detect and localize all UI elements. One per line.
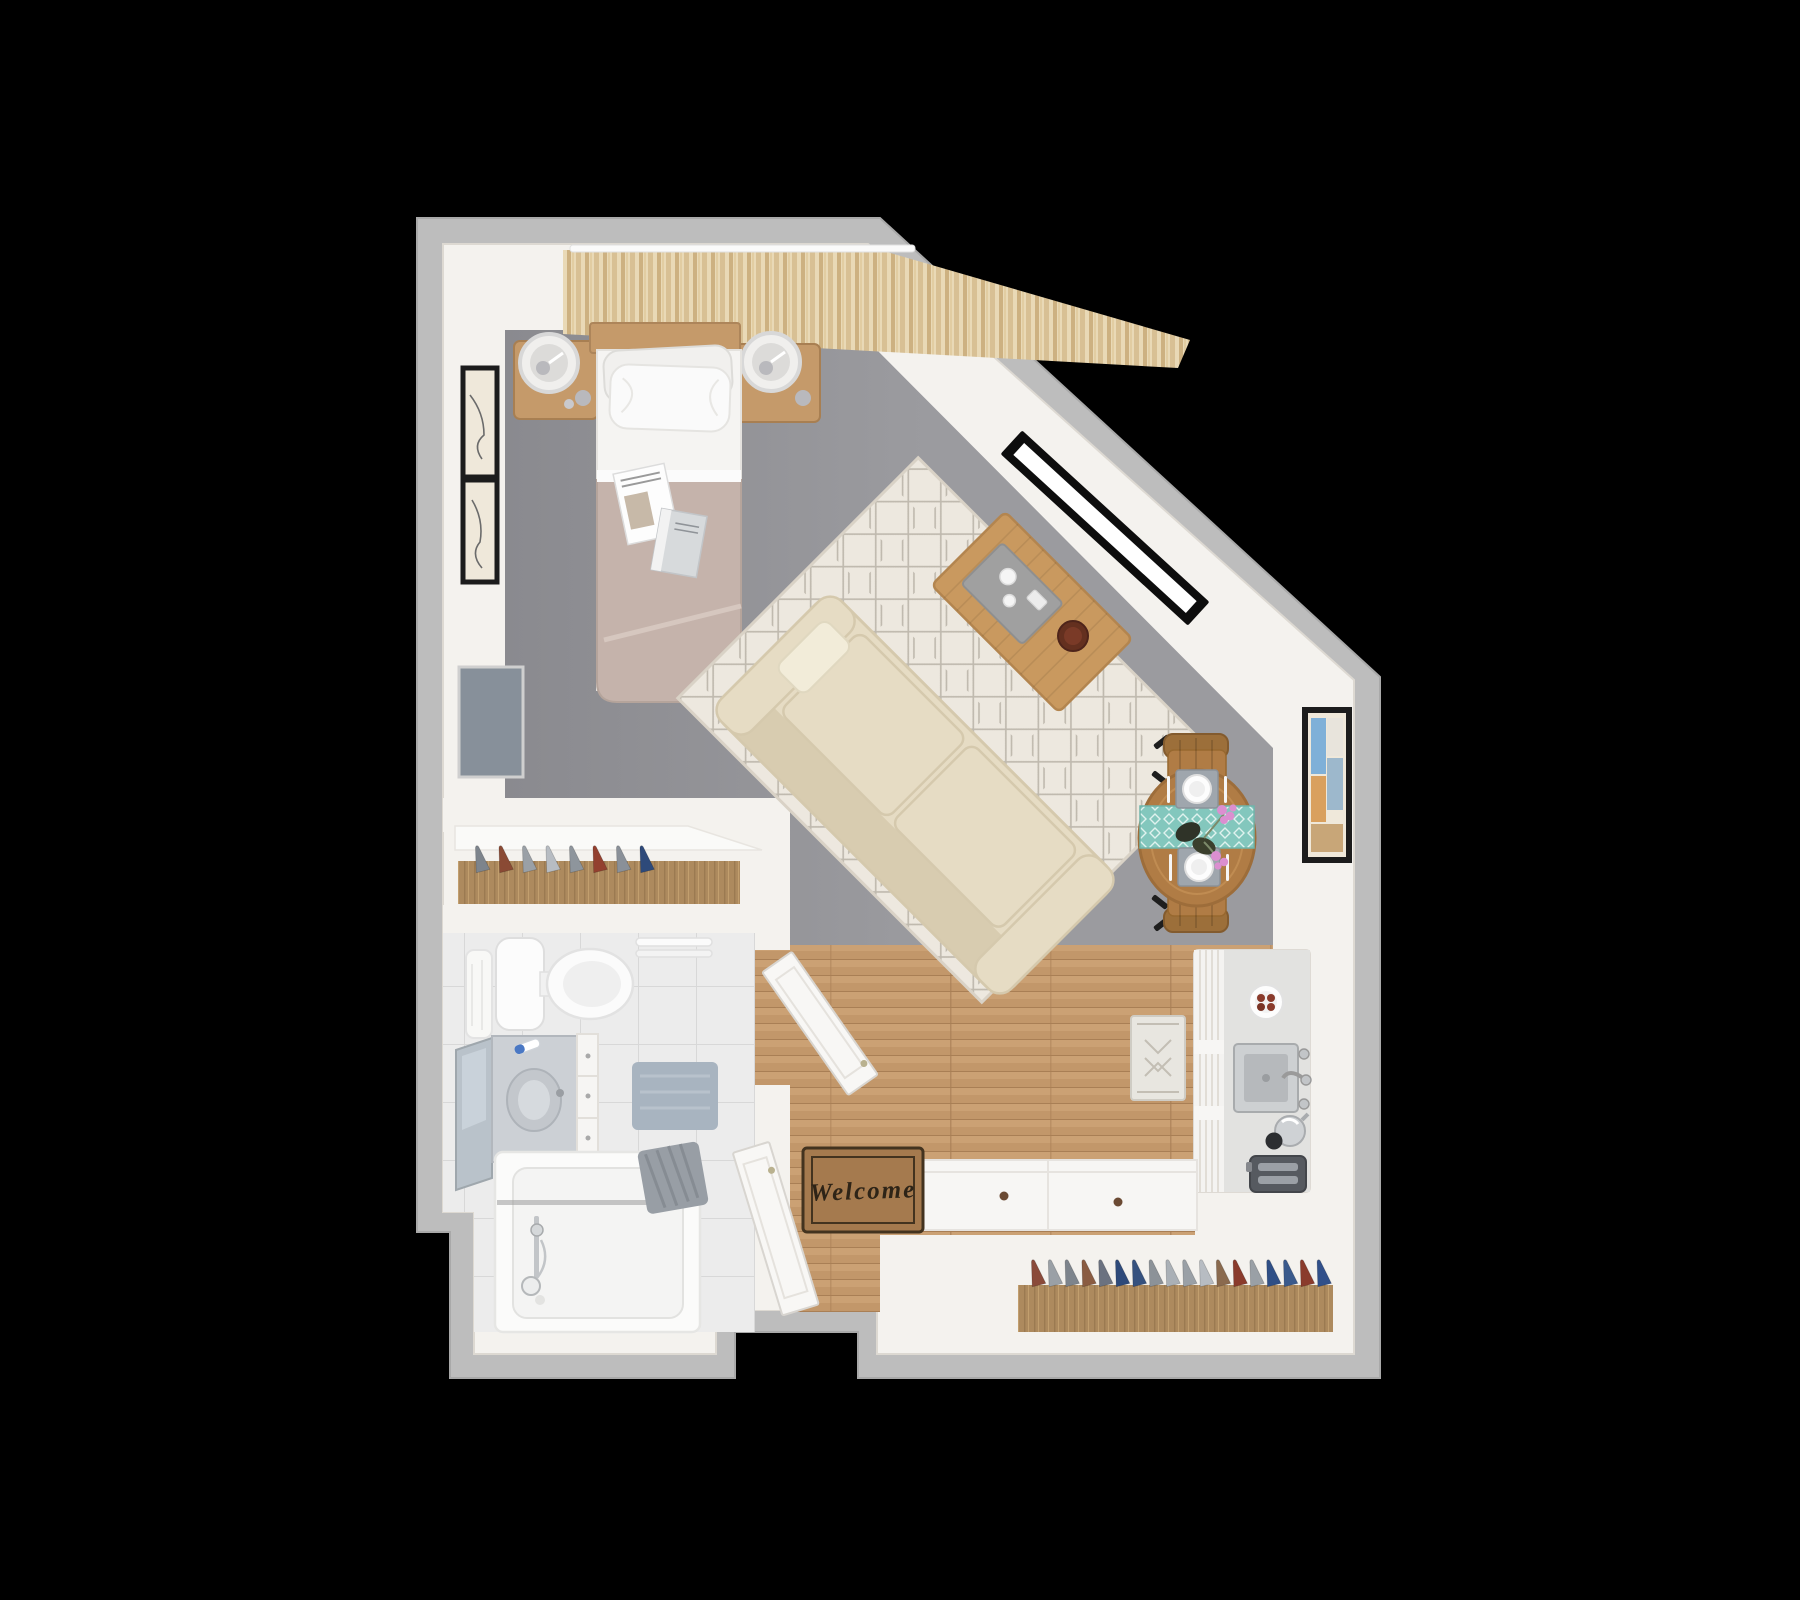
cabinet-knob <box>1114 1198 1123 1207</box>
floor-plan: Welcome <box>0 0 1800 1600</box>
bed <box>590 323 741 702</box>
cabinet-divider <box>1194 1040 1224 1054</box>
tub-drain <box>535 1295 545 1305</box>
shower-valve <box>531 1224 543 1236</box>
lamp-finial <box>536 361 550 375</box>
wall-art-frames <box>463 368 497 582</box>
fork <box>1167 776 1170 803</box>
sink-basin-inner <box>518 1080 550 1120</box>
toaster-lever <box>1246 1162 1252 1172</box>
toilet-tank <box>496 938 544 1030</box>
tub-towels <box>637 1141 709 1215</box>
closet-small <box>455 826 762 904</box>
art-block <box>1311 718 1326 774</box>
cookie-plate <box>1249 985 1283 1019</box>
wall-closet-bathroom <box>443 905 790 933</box>
decor-sphere <box>795 390 811 406</box>
bowl <box>1189 781 1205 797</box>
bath-mat <box>632 1062 718 1130</box>
picture-frame <box>463 368 497 477</box>
lower-cabinets <box>903 1160 1197 1230</box>
welcome-mat: Welcome <box>803 1148 923 1232</box>
curtain-rod <box>570 245 915 252</box>
art-block <box>1327 758 1343 810</box>
bathtub <box>495 1141 709 1332</box>
place-setting-top <box>1167 770 1227 808</box>
sink-drain <box>1262 1074 1270 1082</box>
pillow <box>609 364 731 432</box>
kitchen-cabinet-doors <box>1194 950 1224 1192</box>
kitchen-runner-rug <box>1131 1016 1185 1100</box>
cabinet-run <box>903 1160 1197 1230</box>
drawer-knob <box>586 1094 591 1099</box>
art-block <box>1311 824 1343 852</box>
faucet-handle <box>1299 1049 1309 1059</box>
toilet-lid-inner <box>563 961 621 1007</box>
decor-sphere <box>575 390 591 406</box>
vanity-faucet <box>556 1089 564 1097</box>
faucet-handle <box>1299 1099 1309 1109</box>
tv-screen <box>459 667 523 777</box>
kitchen-sink <box>1234 1044 1311 1112</box>
nightstand-left <box>514 334 598 419</box>
cabinet-knob <box>1000 1192 1009 1201</box>
wall-art-right <box>1305 710 1349 860</box>
fork <box>1169 854 1172 881</box>
decor-sphere <box>564 399 574 409</box>
faucet-handle <box>1301 1075 1311 1085</box>
spoon <box>1224 776 1227 803</box>
drawer-knob <box>586 1136 591 1141</box>
nightstand-right <box>736 333 820 422</box>
drawer-knob <box>586 1054 591 1059</box>
floor-plan-page: Welcome <box>0 0 1800 1600</box>
toaster <box>1246 1156 1306 1192</box>
closet-rail <box>1018 1285 1333 1332</box>
handheld-shower-head <box>522 1277 540 1295</box>
art-block <box>1327 718 1343 756</box>
book <box>651 508 707 577</box>
hanging-towels <box>466 950 492 1038</box>
lamp-finial <box>759 361 773 375</box>
art-block <box>1311 776 1326 822</box>
cabinet-divider <box>1194 1106 1224 1120</box>
kettle-handle <box>1266 1133 1283 1150</box>
mirror-reflection <box>462 1048 486 1130</box>
bowl <box>1191 859 1207 875</box>
welcome-mat-text: Welcome <box>809 1176 916 1207</box>
spoon <box>1226 854 1229 881</box>
